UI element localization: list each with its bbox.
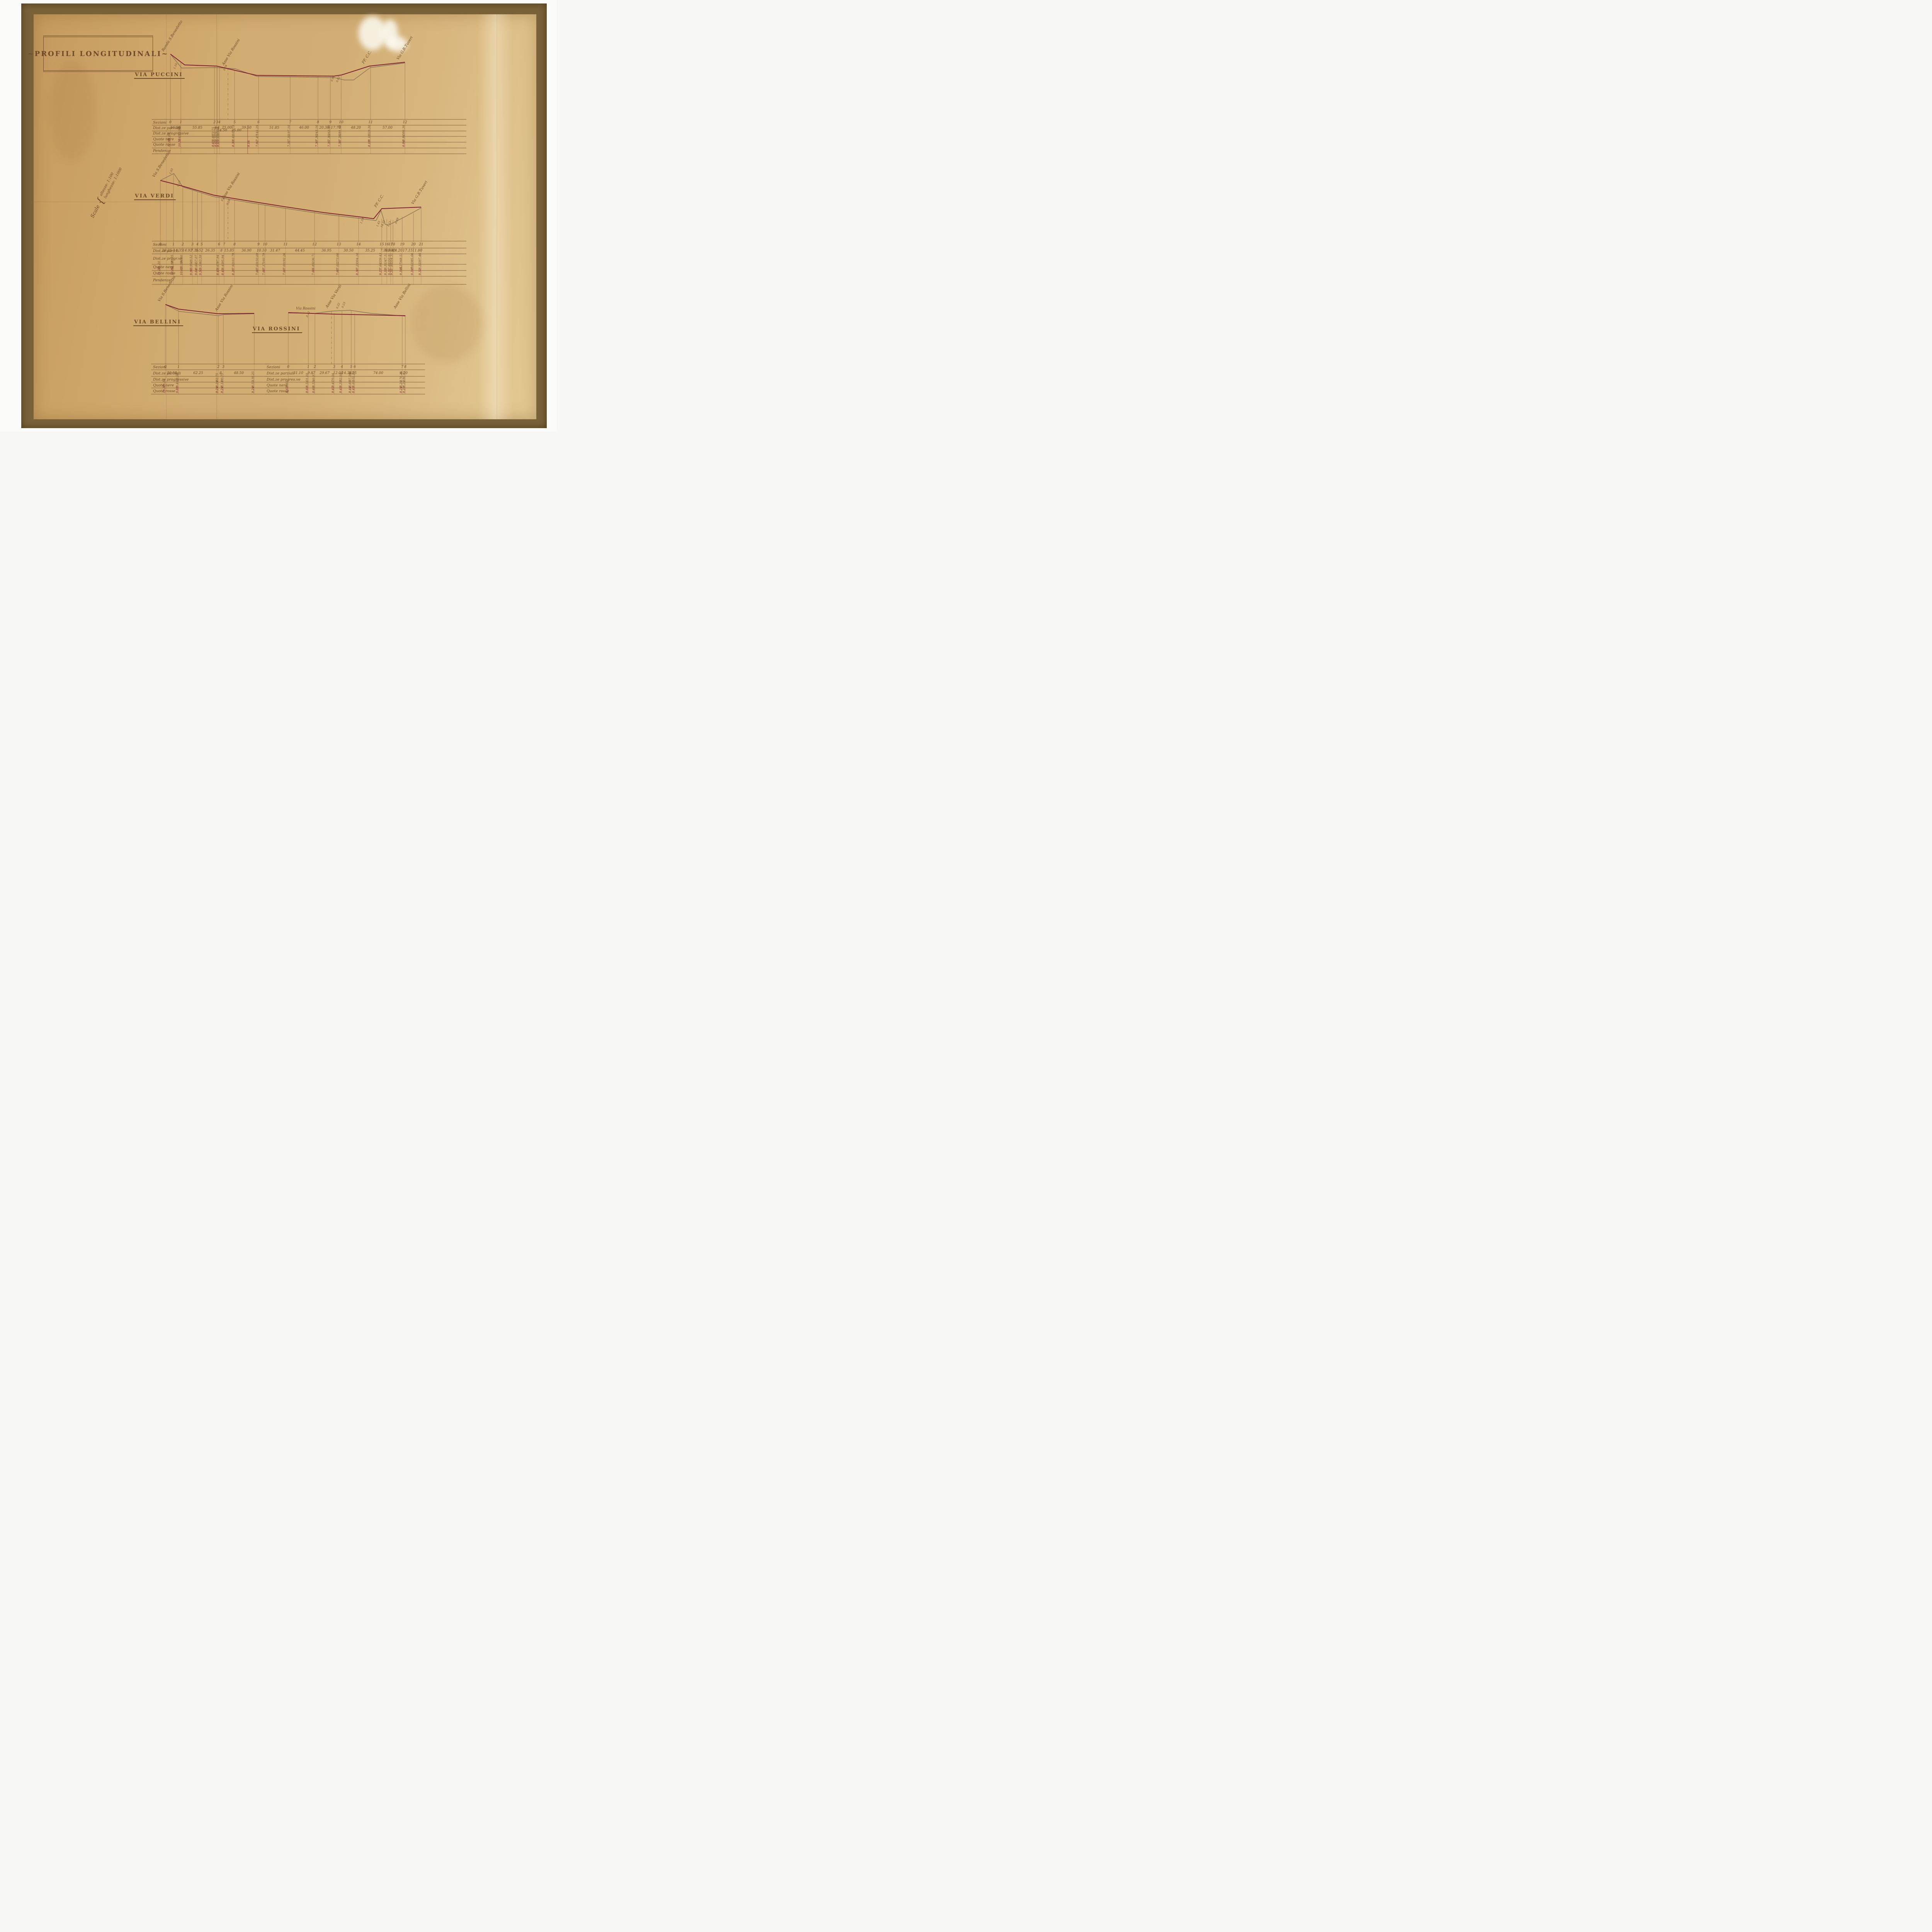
partial-distance: 31.10: [293, 371, 303, 375]
grade-elevation: 7.60: [255, 269, 259, 275]
grade-elevation: 11.08: [167, 139, 171, 147]
partial-distance: 46.00: [299, 126, 309, 130]
section-number: 0: [164, 365, 167, 369]
partial-distance: 51.85: [269, 126, 279, 130]
endpoint-label: Via G.B.Tuveri: [411, 180, 429, 205]
street-title-rossini: VIA ROSSINI: [252, 326, 302, 333]
spot-elevation: 0.22: [336, 303, 341, 309]
partial-distance: 55.85: [192, 126, 202, 130]
section-number: 8: [404, 365, 406, 369]
grade-elevation: 8.43: [352, 386, 355, 393]
section-number: 14: [356, 243, 361, 247]
scanned-drawing: ~PROFILI LONGITUDINALI~ Scale { altezze:…: [0, 0, 557, 432]
spot-elevation: 0.63: [336, 76, 341, 83]
title-box: ~PROFILI LONGITUDINALI~: [43, 36, 153, 72]
text-layer: ~PROFILI LONGITUDINALI~ Scale { altezze:…: [0, 0, 557, 432]
partial-distance: 39.50: [241, 126, 252, 130]
grade-elevation: 9.96: [189, 269, 193, 275]
spot-elevation: 1.59: [360, 218, 365, 224]
grade-elevation: 8.65: [285, 386, 289, 393]
spot-elevation: 0.23: [341, 302, 346, 308]
section-number: 5: [233, 121, 236, 124]
spot-elevation: 0.28: [226, 199, 231, 206]
progressive-distance: 160.79: [262, 253, 265, 263]
grade-elevation: 8.45: [331, 386, 335, 393]
progressive-distance: 339.43: [379, 253, 382, 263]
row-label: Dist.ze progressive: [153, 378, 189, 382]
spot-elevation: 0.90: [330, 75, 335, 82]
grade-elevation: 8.30: [231, 140, 235, 147]
grade-elevation: 7.92: [255, 140, 259, 147]
endpoint-label: FF. C.C.: [361, 50, 372, 65]
endpoint-label: Asse Via Rossini: [221, 38, 241, 66]
section-number: 0: [159, 243, 162, 247]
grade-elevation: 9.64: [194, 269, 198, 275]
grade-elevation: 8.23: [402, 386, 406, 393]
section-number: 7: [401, 365, 403, 369]
partial-distance: 10.10: [257, 249, 267, 253]
grade-elevation: 7.38: [338, 140, 342, 147]
section-number: 6: [257, 121, 260, 124]
spot-elevation: 0.12: [306, 311, 311, 318]
grade-elevation: 8.45: [221, 269, 224, 275]
section-number: 2: [213, 121, 216, 124]
partial-distance: 74.00: [373, 371, 383, 375]
grade-elevation: 7.30: [315, 140, 318, 147]
partial-distance: 62.25: [193, 371, 203, 375]
progressive-distance: 281.10: [338, 125, 342, 135]
progressive-distance: 97.00: [348, 373, 352, 381]
progressive-distance: 95.94: [221, 255, 224, 263]
partial-distance: 30.50: [344, 249, 354, 253]
spot-elevation: 1.11: [387, 221, 392, 227]
grade-elevation: 9.31: [390, 269, 393, 275]
spot-elevation: 1.03: [169, 168, 174, 175]
section-number: 12: [312, 243, 316, 247]
header-label-via-rossini: Via Rossini: [296, 307, 315, 311]
endpoint-label: Asse Via Rossini: [214, 284, 234, 312]
street-title-bellini: VIA BELLINI: [133, 319, 183, 326]
progressive-distance: 263.40: [327, 125, 331, 135]
section-number: 8: [233, 243, 236, 247]
section-number: 8: [317, 121, 319, 124]
section-number: 6: [218, 243, 220, 247]
section-number: 11: [368, 121, 372, 124]
section-number: 15: [379, 243, 384, 247]
progressive-distance: 273.66: [336, 253, 339, 263]
drawing-title: ~PROFILI LONGITUDINALI~: [27, 50, 168, 58]
section-number: 9: [257, 243, 260, 247]
progressive-distance: 57.07: [194, 255, 198, 263]
grade-elevation: 10.53: [178, 139, 181, 147]
street-title-puccini: VIA PUCCINI: [134, 72, 185, 79]
partial-distance: 57.00: [383, 126, 393, 130]
row-label: Dist.ze progr.ve: [153, 257, 182, 261]
endpoint-label: Via S.Benedetto: [152, 151, 171, 178]
section-number: 9: [329, 121, 332, 124]
section-number: 10: [263, 243, 267, 247]
progressive-distance: 354.31: [390, 253, 393, 263]
progressive-distance: 397.46: [418, 253, 422, 263]
partial-distance: 29.67: [320, 371, 330, 375]
grade-elevation: 8.45: [216, 269, 219, 275]
section-number: 0: [287, 365, 289, 369]
progressive-distance: 16.90: [178, 127, 181, 135]
section-number: 3: [216, 121, 218, 124]
progressive-distance: 31.10: [305, 373, 309, 381]
street-title-verdi: VIA VERDI: [134, 193, 176, 200]
grade-elevation-extra: 8.16: [247, 140, 250, 147]
progressive-distance: 197.10: [287, 125, 291, 135]
section-number: 5: [201, 243, 203, 247]
grade-elevation: 7.31: [287, 140, 291, 147]
section-number: 6: [354, 365, 356, 369]
partial-distance: 6.52: [196, 249, 203, 253]
grade-elevation: 9.32: [418, 269, 422, 275]
progressive-distance: 63.59: [199, 255, 202, 263]
progressive-distance: 70.64: [331, 373, 335, 381]
scale-note: Scale { altezze: 1:100 lunghezze: 1:1000: [87, 146, 133, 220]
row-label: Sezioni: [267, 365, 280, 369]
grade-elevation: 7.60: [262, 269, 265, 275]
grade-elevation: 7.35: [327, 140, 331, 147]
grade-elevation: 8.20: [231, 269, 235, 275]
progressive-distance: 139.25: [251, 371, 255, 381]
partial-distance: 44.45: [295, 249, 305, 253]
progressive-distance: 105.75: [231, 125, 235, 135]
section-number: 4: [341, 365, 343, 369]
row-label: Dist.ze progres.ve: [267, 378, 301, 382]
grade-elevation: 8.45: [339, 386, 342, 393]
grade-elevation: 7.60: [336, 269, 339, 275]
section-number: 1: [307, 365, 310, 369]
partial-distance: 14.35: [173, 249, 183, 253]
section-number: 2: [314, 365, 316, 369]
section-number: 1: [180, 121, 182, 124]
grade-elevation: 11.20: [157, 267, 161, 275]
grade-elevation: 9.31: [384, 269, 387, 275]
section-number: 21: [419, 243, 423, 247]
partial-distance: 26.35: [205, 249, 215, 253]
section-number: 3: [191, 243, 194, 247]
endpoint-label: FF. C.C.: [374, 194, 385, 208]
partial-distance: 15.85: [224, 249, 234, 253]
grade-elevation: 7.60: [282, 269, 286, 275]
scale-values: altezze: 1:100 lunghezze: 1:1000: [99, 165, 123, 199]
grade-elevation: 8.30: [355, 269, 359, 275]
partial-distance: 11.80: [412, 249, 422, 253]
section-number: 5: [350, 365, 352, 369]
row-label: Sezioni: [153, 121, 167, 125]
grade-elevation: 8.66: [312, 386, 315, 393]
grade-elevation: 8.65: [216, 140, 220, 147]
section-number: 7: [223, 243, 225, 247]
progressive-distance: 82.64: [339, 373, 342, 381]
grade-elevation: 9.315: [399, 267, 403, 275]
progressive-distance: 347.31: [384, 253, 387, 263]
grade-elevation: 10.85: [170, 267, 174, 275]
grade-elevation: 7.60: [311, 269, 315, 275]
partial-distance: 17.15: [403, 249, 413, 253]
endpoint-label: Rondò S.Benedetto: [161, 20, 184, 52]
grade-elevation: 8.24: [215, 386, 219, 393]
section-number: 2: [217, 365, 219, 369]
partial-distance: 36.90: [241, 249, 252, 253]
endpoint-label: Asse Via Bellini: [393, 283, 412, 310]
grade-elevation: 8.44: [348, 386, 352, 393]
progressive-distance: 145.25: [255, 125, 259, 135]
progressive-distance: 90.75: [220, 373, 224, 381]
section-number: 20: [411, 243, 415, 247]
grade-elevation: 8.24: [220, 386, 224, 393]
progressive-distance: 82.75: [215, 373, 219, 381]
progressive-distance: 102.25: [352, 371, 355, 381]
grade-elevation: 8.60: [305, 386, 309, 393]
progressive-distance: 180.45: [402, 371, 406, 381]
spot-elevation: 14.31: [380, 219, 386, 228]
endpoint-label: Via G.B.Tuveri: [396, 36, 414, 61]
partial-distance: 35.25: [365, 249, 375, 253]
partial-distance: 8: [220, 249, 223, 253]
progressive-distance: 192.26: [282, 253, 286, 263]
section-number: 12: [403, 121, 407, 124]
progressive-distance: 243.16: [315, 125, 318, 135]
progressive-distance: 103.79: [231, 253, 235, 263]
scale-word: Scale: [89, 204, 101, 219]
grade-elevation: 8.24: [251, 386, 255, 393]
grade-elevation: 8.18: [367, 140, 371, 147]
section-number: 3: [222, 365, 224, 369]
grade-elevation: 9.88: [175, 386, 179, 393]
spot-elevation: 0.17: [177, 180, 182, 187]
progressive-distance: 40.97: [312, 373, 315, 381]
progressive-distance: 368.51: [399, 253, 403, 263]
partial-distance: 20.25: [162, 249, 172, 253]
progressive-distance: 329.30: [367, 125, 371, 135]
section-number: 4: [196, 243, 199, 247]
section-number: 1: [177, 365, 180, 369]
progressive-distance: 150.69: [255, 253, 259, 263]
section-number: 10: [339, 121, 343, 124]
progressive-distance: 304.16: [355, 253, 359, 263]
spot-elevation: 1.10: [173, 63, 178, 70]
partial-distance: 48.20: [351, 126, 361, 130]
row-label: Dist.ze progressive: [153, 131, 189, 136]
section-number: 4: [218, 121, 221, 124]
grade-elevation: 10.63: [180, 267, 183, 275]
progressive-distance: 80.75: [216, 127, 220, 135]
section-number: 0: [169, 121, 172, 124]
section-number: 3: [333, 365, 335, 369]
section-number: 19: [400, 243, 404, 247]
grade-elevation: 9.317: [410, 267, 414, 275]
grade-elevation: 10.30: [162, 385, 166, 393]
partial-distance: 36.95: [321, 249, 332, 253]
spot-elevation: 0.69: [395, 218, 400, 224]
grade-elevation: 8.84: [402, 140, 405, 147]
partial-distance: 14.20: [393, 249, 403, 253]
section-number: 13: [337, 243, 341, 247]
section-number: 2: [182, 243, 184, 247]
progressive-distance: 385.66: [410, 253, 414, 263]
partial-distance: 31.47: [270, 249, 280, 253]
section-number: 1: [172, 243, 175, 247]
partial-distance: 48.50: [234, 371, 244, 375]
progressive-distance: 87.94: [216, 255, 219, 263]
progressive-distance: 20.50: [175, 373, 179, 381]
row-label: Quote rosse: [153, 143, 175, 147]
section-number: 18: [391, 243, 395, 247]
progressive-distance: 386.30: [402, 125, 405, 135]
grade-elevation: 9.50: [199, 269, 202, 275]
row-label: Quote nere: [267, 383, 287, 388]
section-number: 7: [289, 121, 291, 124]
row-label: Dist.ze parziali: [267, 371, 294, 376]
grade-elevation: 9.23: [379, 269, 382, 275]
progressive-distance: 49.52: [189, 255, 193, 263]
section-number: 11: [283, 243, 287, 247]
progressive-distance: 236.71: [311, 253, 315, 263]
